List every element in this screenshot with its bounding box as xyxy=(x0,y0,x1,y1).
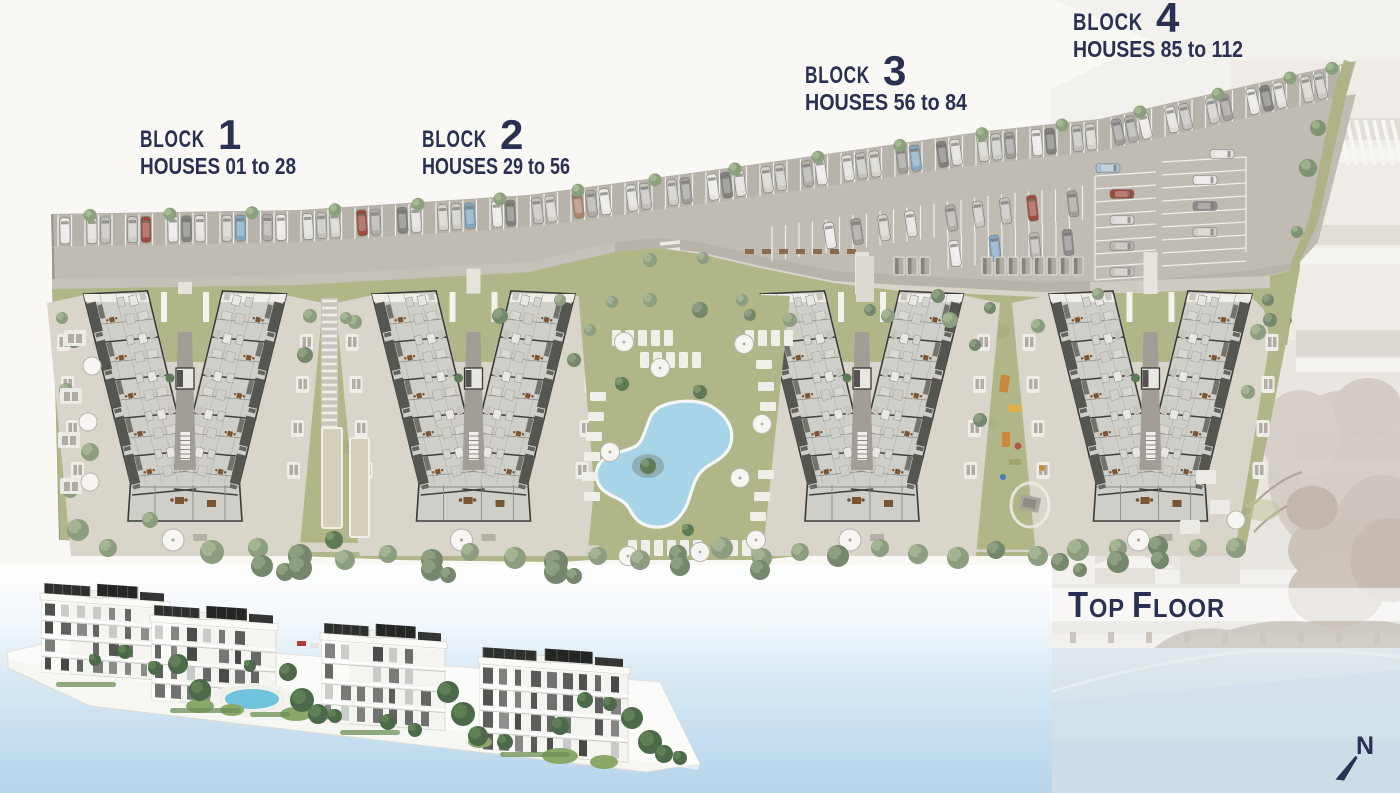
svg-text:BLOCK: BLOCK xyxy=(1073,9,1143,36)
svg-text:HOUSES 85 to 112: HOUSES 85 to 112 xyxy=(1073,36,1243,62)
svg-text:BLOCK: BLOCK xyxy=(422,126,487,153)
svg-text:HOUSES 29 to 56: HOUSES 29 to 56 xyxy=(422,153,570,179)
svg-text:2: 2 xyxy=(500,111,523,158)
svg-text:1: 1 xyxy=(218,111,241,158)
svg-text:BLOCK: BLOCK xyxy=(140,126,205,153)
svg-text:HOUSES 56 to 84: HOUSES 56 to 84 xyxy=(805,89,967,115)
svg-text:3: 3 xyxy=(883,47,906,94)
svg-text:4: 4 xyxy=(1156,0,1180,41)
svg-text:HOUSES 01 to 28: HOUSES 01 to 28 xyxy=(140,153,296,179)
svg-text:BLOCK: BLOCK xyxy=(805,62,870,89)
svg-text:N: N xyxy=(1356,732,1374,760)
